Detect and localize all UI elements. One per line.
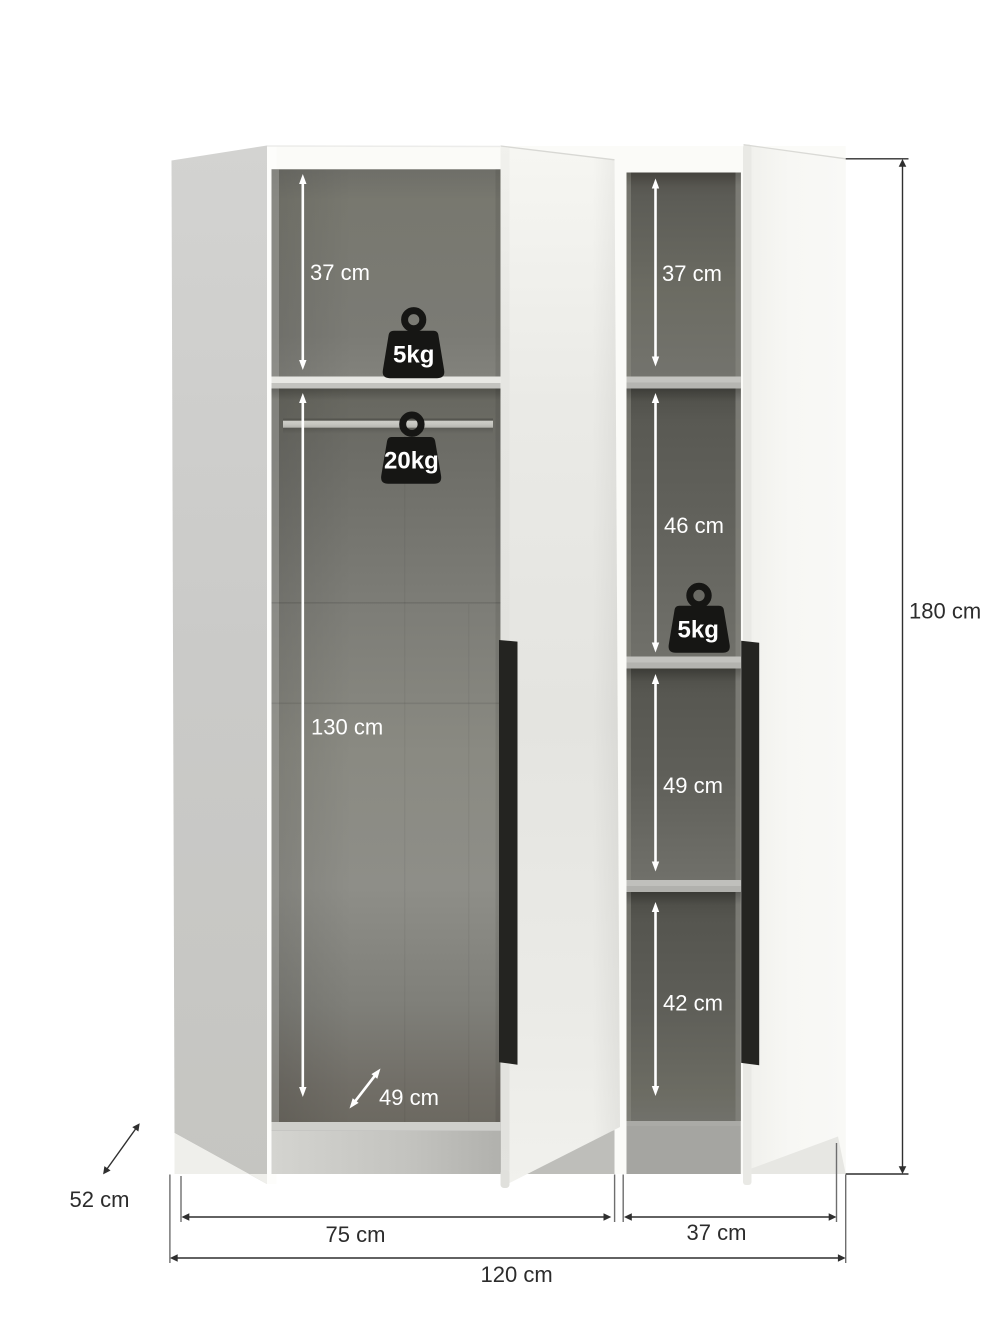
svg-text:49 cm: 49 cm xyxy=(663,773,723,798)
svg-text:130 cm: 130 cm xyxy=(311,715,383,740)
svg-text:46 cm: 46 cm xyxy=(664,513,724,538)
svg-text:37 cm: 37 cm xyxy=(687,1220,747,1245)
svg-text:75 cm: 75 cm xyxy=(326,1222,386,1247)
svg-text:37 cm: 37 cm xyxy=(662,261,722,286)
svg-text:5kg: 5kg xyxy=(393,342,434,369)
svg-text:42 cm: 42 cm xyxy=(663,991,723,1016)
svg-text:5kg: 5kg xyxy=(678,617,719,644)
svg-text:20kg: 20kg xyxy=(384,448,439,475)
svg-text:180 cm: 180 cm xyxy=(909,599,981,624)
svg-text:37 cm: 37 cm xyxy=(310,260,370,285)
svg-text:120 cm: 120 cm xyxy=(481,1262,553,1287)
svg-text:49 cm: 49 cm xyxy=(379,1085,439,1110)
svg-text:52 cm: 52 cm xyxy=(70,1187,130,1212)
